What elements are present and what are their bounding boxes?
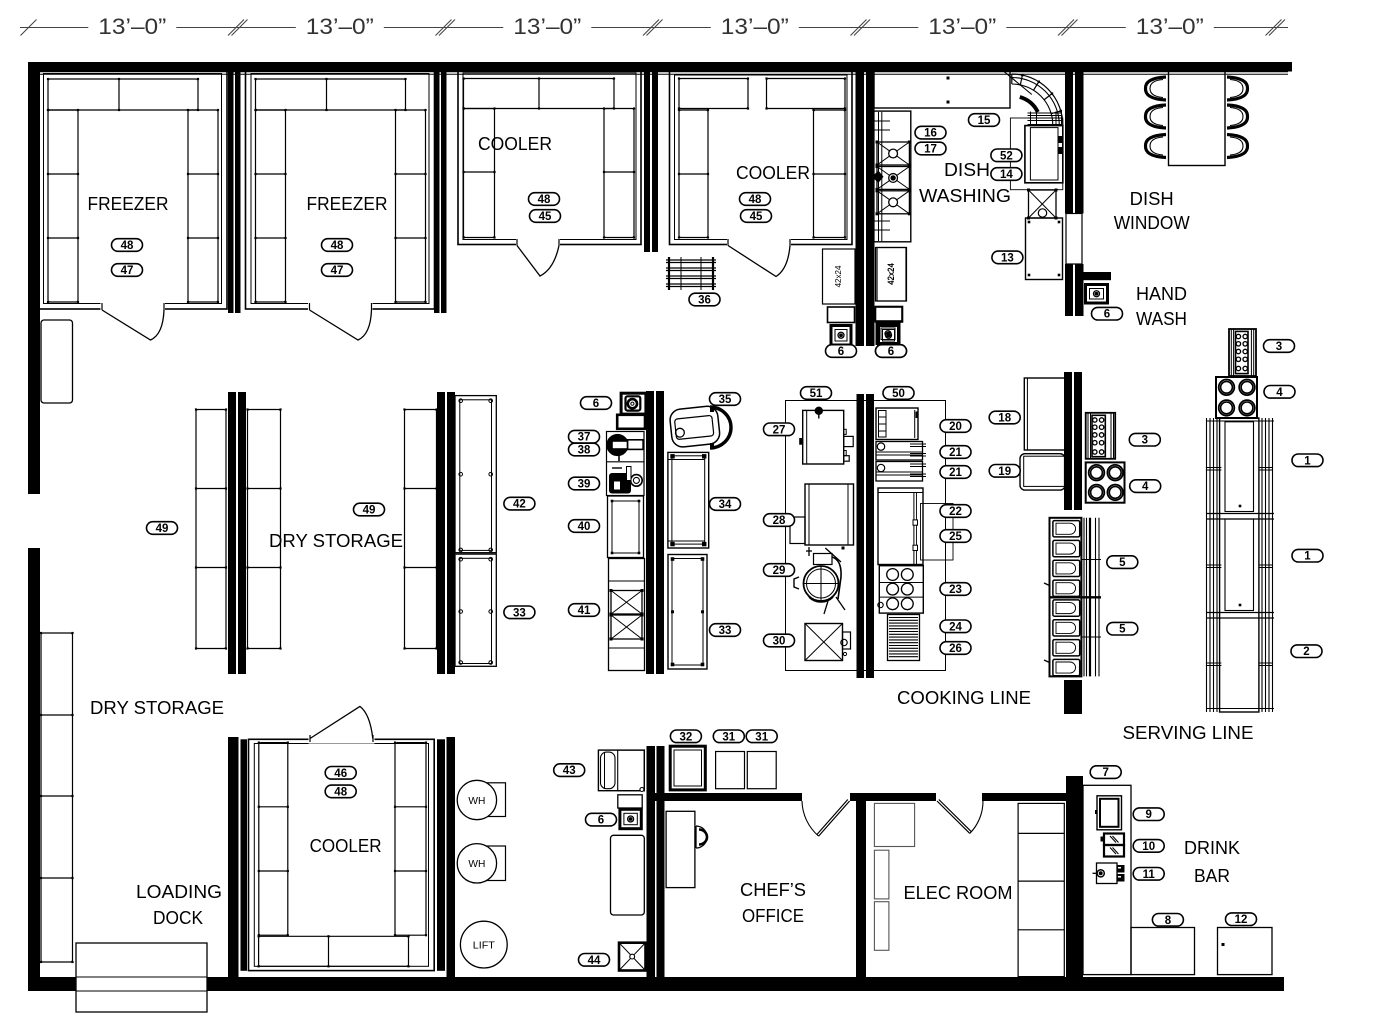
- svg-text:WINDOW: WINDOW: [1114, 213, 1190, 233]
- svg-text:WASHING: WASHING: [919, 186, 1011, 206]
- svg-text:16: 16: [924, 128, 937, 140]
- svg-text:50: 50: [892, 388, 905, 400]
- svg-text:WH: WH: [468, 858, 485, 870]
- svg-text:13’–0”: 13’–0”: [928, 14, 996, 39]
- svg-text:4: 4: [1276, 387, 1283, 399]
- svg-text:45: 45: [539, 211, 552, 223]
- svg-text:33: 33: [719, 625, 732, 637]
- svg-text:DISH: DISH: [944, 160, 990, 180]
- svg-text:49: 49: [363, 505, 376, 517]
- svg-text:13’–0”: 13’–0”: [1136, 14, 1204, 39]
- svg-text:DOCK: DOCK: [153, 908, 203, 928]
- svg-text:11: 11: [1143, 869, 1156, 881]
- svg-text:38: 38: [578, 445, 591, 457]
- svg-text:45: 45: [750, 211, 763, 223]
- svg-text:24: 24: [949, 621, 962, 633]
- svg-text:41: 41: [578, 605, 591, 617]
- svg-text:BAR: BAR: [1194, 866, 1230, 886]
- svg-text:31: 31: [755, 731, 768, 743]
- svg-text:COOLER: COOLER: [478, 134, 552, 154]
- svg-text:1: 1: [1304, 551, 1311, 563]
- svg-text:33: 33: [513, 607, 526, 619]
- svg-text:CHEF’S: CHEF’S: [740, 880, 806, 900]
- svg-text:18: 18: [998, 413, 1011, 425]
- svg-text:ELEC ROOM: ELEC ROOM: [904, 883, 1013, 903]
- svg-text:40: 40: [578, 521, 591, 533]
- svg-text:SERVING LINE: SERVING LINE: [1123, 723, 1254, 743]
- svg-text:LIFT: LIFT: [473, 939, 496, 951]
- svg-text:FREEZER: FREEZER: [88, 194, 169, 214]
- svg-text:19: 19: [998, 466, 1011, 478]
- svg-text:4: 4: [1142, 481, 1149, 493]
- svg-text:13’–0”: 13’–0”: [721, 14, 789, 39]
- svg-text:2: 2: [1303, 646, 1309, 658]
- svg-text:49: 49: [156, 523, 169, 535]
- svg-text:WASH: WASH: [1136, 309, 1187, 329]
- svg-text:36: 36: [698, 295, 711, 307]
- svg-text:43: 43: [563, 765, 576, 777]
- svg-text:6: 6: [598, 815, 604, 827]
- svg-text:22: 22: [949, 506, 962, 518]
- svg-text:8: 8: [1165, 915, 1172, 927]
- svg-text:30: 30: [773, 636, 786, 648]
- svg-text:FREEZER: FREEZER: [307, 194, 388, 214]
- svg-text:15: 15: [978, 115, 991, 127]
- svg-text:6: 6: [593, 398, 599, 410]
- svg-text:48: 48: [331, 240, 344, 252]
- svg-text:13’–0”: 13’–0”: [98, 14, 166, 39]
- svg-text:25: 25: [949, 531, 962, 543]
- svg-text:31: 31: [722, 731, 735, 743]
- svg-text:13: 13: [1001, 252, 1014, 264]
- svg-text:47: 47: [331, 265, 344, 277]
- svg-text:9: 9: [1145, 809, 1151, 821]
- svg-text:35: 35: [719, 394, 732, 406]
- svg-text:10: 10: [1142, 841, 1155, 853]
- svg-text:5: 5: [1119, 624, 1126, 636]
- svg-text:26: 26: [949, 643, 962, 655]
- svg-text:48: 48: [538, 194, 551, 206]
- svg-text:17: 17: [924, 144, 937, 156]
- svg-text:6: 6: [838, 346, 844, 358]
- svg-text:23: 23: [949, 584, 962, 596]
- svg-text:48: 48: [749, 194, 762, 206]
- svg-text:1: 1: [1304, 455, 1311, 467]
- svg-text:7: 7: [1102, 767, 1108, 779]
- svg-text:46: 46: [334, 768, 347, 780]
- svg-text:28: 28: [773, 515, 786, 527]
- svg-text:42: 42: [513, 499, 526, 511]
- svg-text:DRINK: DRINK: [1184, 838, 1240, 858]
- svg-text:3: 3: [1142, 435, 1148, 447]
- svg-text:29: 29: [773, 565, 786, 577]
- svg-text:20: 20: [949, 421, 962, 433]
- svg-text:42x24: 42x24: [834, 265, 843, 287]
- svg-text:LOADING: LOADING: [136, 882, 222, 902]
- svg-text:WH: WH: [468, 795, 485, 807]
- svg-text:42x24: 42x24: [887, 263, 896, 285]
- svg-text:DRY STORAGE: DRY STORAGE: [90, 698, 224, 718]
- svg-text:OFFICE: OFFICE: [742, 906, 804, 926]
- svg-text:HAND: HAND: [1136, 284, 1187, 304]
- svg-text:DRY STORAGE: DRY STORAGE: [269, 531, 403, 551]
- svg-text:COOLER: COOLER: [310, 836, 382, 856]
- svg-text:14: 14: [1000, 169, 1013, 181]
- svg-text:48: 48: [121, 240, 134, 252]
- svg-text:12: 12: [1235, 914, 1248, 926]
- svg-text:27: 27: [773, 424, 786, 436]
- svg-text:6: 6: [1104, 309, 1110, 321]
- svg-text:13’–0”: 13’–0”: [306, 14, 374, 39]
- svg-text:51: 51: [810, 388, 823, 400]
- svg-text:3: 3: [1276, 341, 1282, 353]
- svg-text:37: 37: [578, 432, 591, 444]
- svg-text:32: 32: [680, 731, 693, 743]
- svg-text:COOLER: COOLER: [736, 163, 810, 183]
- svg-text:DISH: DISH: [1130, 189, 1174, 209]
- svg-text:39: 39: [578, 479, 591, 491]
- svg-text:21: 21: [949, 467, 962, 479]
- svg-text:48: 48: [334, 786, 347, 798]
- svg-text:52: 52: [1000, 150, 1013, 162]
- svg-text:COOKING LINE: COOKING LINE: [897, 688, 1031, 708]
- svg-text:6: 6: [888, 346, 894, 358]
- svg-text:44: 44: [588, 955, 601, 967]
- svg-text:34: 34: [719, 499, 732, 511]
- svg-text:13’–0”: 13’–0”: [513, 14, 581, 39]
- svg-text:5: 5: [1119, 557, 1126, 569]
- svg-text:21: 21: [949, 447, 962, 459]
- svg-text:47: 47: [121, 265, 134, 277]
